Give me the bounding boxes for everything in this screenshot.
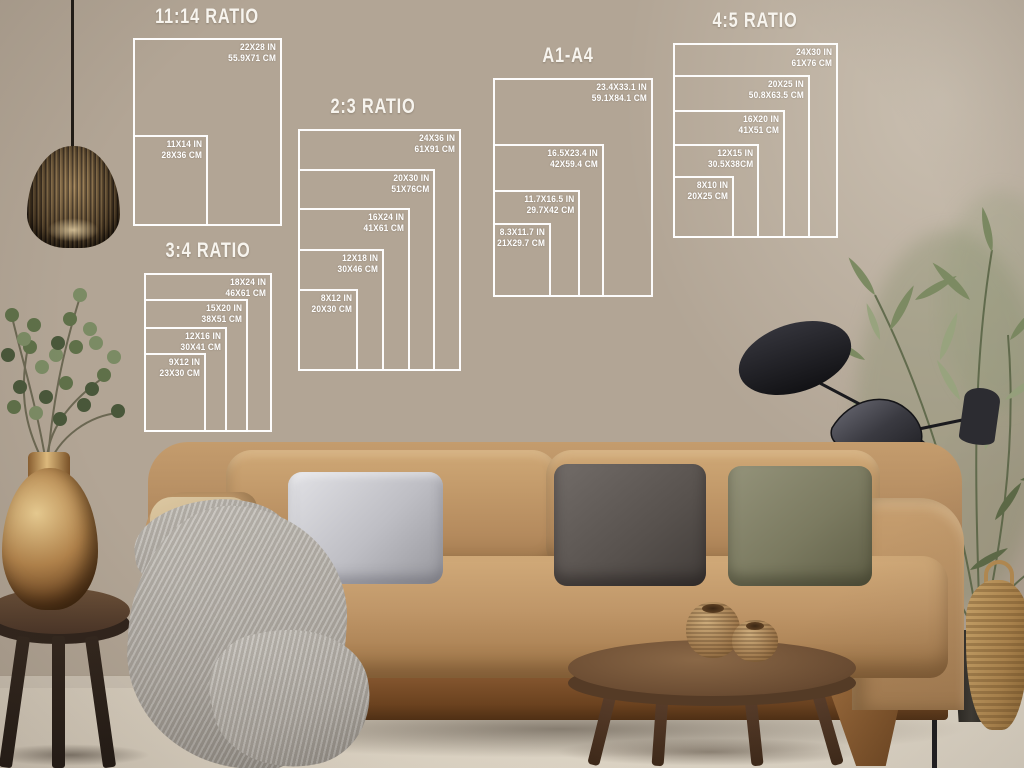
olive-pillow xyxy=(728,466,872,586)
size-rect-a4: 8.3X11.7 IN21X29.7 CM xyxy=(493,223,551,297)
size-guide-title-a1-a4: A1-A4 xyxy=(482,44,654,68)
size-guide-group-4-5: 24X30 IN61X76 CM 20X25 IN50.8X63.5 CM 16… xyxy=(673,43,838,238)
size-guide-group-a1-a4: 23.4X33.1 IN59.1X84.1 CM 16.5X23.4 IN42X… xyxy=(493,78,653,297)
size-guide-title-2-3: 2:3 RATIO xyxy=(287,95,459,119)
size-guide-group-3-4: 18X24 IN46X61 CM 15X20 IN38X51 CM 12X16 … xyxy=(144,273,272,432)
pendant-light-glow xyxy=(47,218,99,242)
size-rect-8x10: 8X10 IN20X25 CM xyxy=(673,176,734,238)
size-rect-9x12: 9X12 IN23X30 CM xyxy=(144,353,206,432)
poster-size-guide-mockup: 11:14 RATIO 22X28 IN55.9X71 CM 11X14 IN2… xyxy=(0,0,1024,768)
size-rect-11x14: 11X14 IN28X36 CM xyxy=(133,135,208,226)
pendant-cord xyxy=(71,0,74,150)
size-guide-group-2-3: 24X36 IN61X91 CM 20X30 IN51X76CM 16X24 I… xyxy=(298,129,461,371)
size-guide-title-3-4: 3:4 RATIO xyxy=(122,239,294,263)
decor-vase-mouth xyxy=(702,604,724,613)
side-table-leg xyxy=(52,636,65,768)
decor-vase-mouth xyxy=(746,622,764,630)
size-guide-group-11-14: 22X28 IN55.9X71 CM 11X14 IN28X36 CM xyxy=(133,38,282,226)
size-rect-8x12: 8X12 IN20X30 CM xyxy=(298,289,358,371)
woven-basket xyxy=(966,580,1024,730)
size-guide-title-4-5: 4:5 RATIO xyxy=(669,9,841,33)
eucalyptus-plant xyxy=(0,255,150,505)
size-guide-title-11-14: 11:14 RATIO xyxy=(121,5,293,29)
charcoal-pillow xyxy=(554,464,706,586)
